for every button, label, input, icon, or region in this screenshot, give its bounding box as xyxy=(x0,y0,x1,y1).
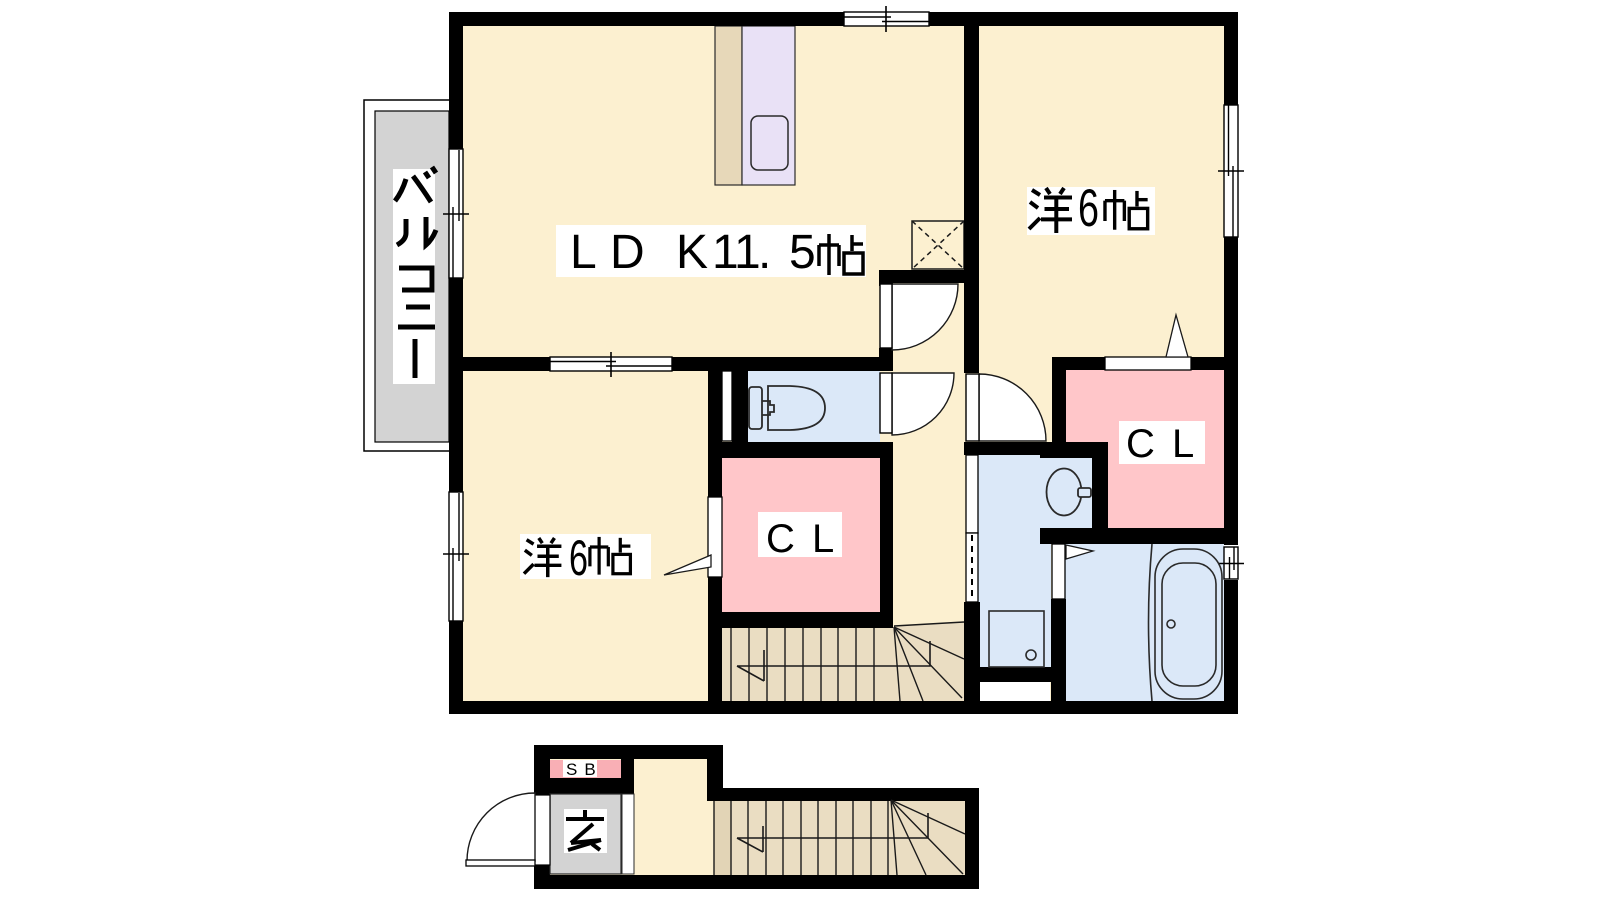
svg-text:C: C xyxy=(1126,422,1155,466)
svg-text:6: 6 xyxy=(569,530,588,586)
svg-text:5: 5 xyxy=(789,226,816,279)
svg-text:K: K xyxy=(676,226,708,279)
svg-text:L: L xyxy=(812,517,834,561)
svg-text:.: . xyxy=(758,226,771,279)
svg-text:1: 1 xyxy=(734,226,761,279)
svg-text:D: D xyxy=(610,226,645,279)
svg-text:L: L xyxy=(1172,422,1194,466)
svg-text:6: 6 xyxy=(1078,179,1099,238)
svg-text:L: L xyxy=(570,226,597,279)
svg-text:SB: SB xyxy=(566,760,603,779)
svg-text:C: C xyxy=(766,517,795,561)
